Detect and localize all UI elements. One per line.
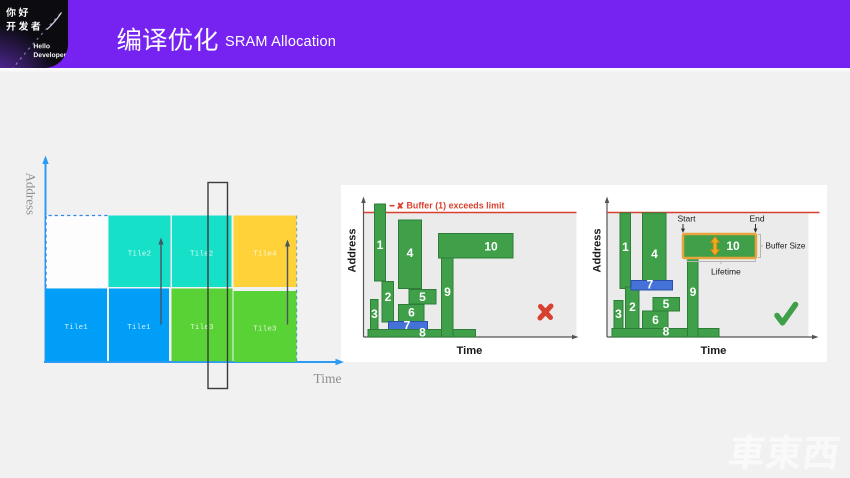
svg-text:Start: Start — [678, 213, 697, 223]
svg-text:Buffer (1) exceeds limit: Buffer (1) exceeds limit — [407, 201, 505, 211]
svg-text:2: 2 — [385, 290, 392, 304]
svg-text:7: 7 — [647, 278, 654, 292]
svg-text:5: 5 — [663, 297, 670, 311]
svg-text:9: 9 — [444, 285, 451, 299]
svg-text:Tile1: Tile1 — [64, 324, 88, 332]
svg-text:Tile3: Tile3 — [190, 324, 214, 332]
svg-text:10: 10 — [726, 239, 740, 253]
svg-text:Address: Address — [24, 173, 39, 216]
svg-text:✘: ✘ — [397, 201, 405, 211]
svg-text:Lifetime: Lifetime — [711, 267, 741, 277]
svg-text:Time: Time — [701, 345, 727, 357]
svg-text:6: 6 — [408, 306, 415, 320]
svg-text:6: 6 — [652, 313, 659, 327]
svg-text:10: 10 — [484, 240, 498, 254]
svg-text:Buffer Size: Buffer Size — [766, 242, 806, 251]
svg-text:9: 9 — [690, 285, 697, 299]
svg-text:3: 3 — [615, 307, 622, 321]
svg-text:Address: Address — [347, 228, 359, 272]
svg-text:1: 1 — [622, 240, 629, 254]
svg-text:Address: Address — [592, 228, 604, 272]
svg-text:4: 4 — [651, 247, 658, 261]
svg-text:2: 2 — [629, 300, 636, 314]
svg-text:1: 1 — [377, 238, 384, 252]
svg-text:Tile4: Tile4 — [253, 250, 277, 258]
svg-text:Tile2: Tile2 — [128, 250, 152, 258]
svg-text:Tile3: Tile3 — [253, 326, 277, 334]
svg-text:5: 5 — [419, 290, 426, 304]
svg-text:8: 8 — [419, 326, 426, 340]
svg-text:Time: Time — [314, 371, 342, 386]
svg-text:4: 4 — [407, 246, 414, 260]
svg-text:3: 3 — [371, 307, 378, 321]
svg-text:Time: Time — [457, 345, 483, 357]
svg-text:End: End — [750, 213, 765, 223]
svg-text:Tile2: Tile2 — [190, 250, 214, 258]
svg-text:Tile1: Tile1 — [127, 324, 151, 332]
svg-text:8: 8 — [663, 325, 670, 339]
